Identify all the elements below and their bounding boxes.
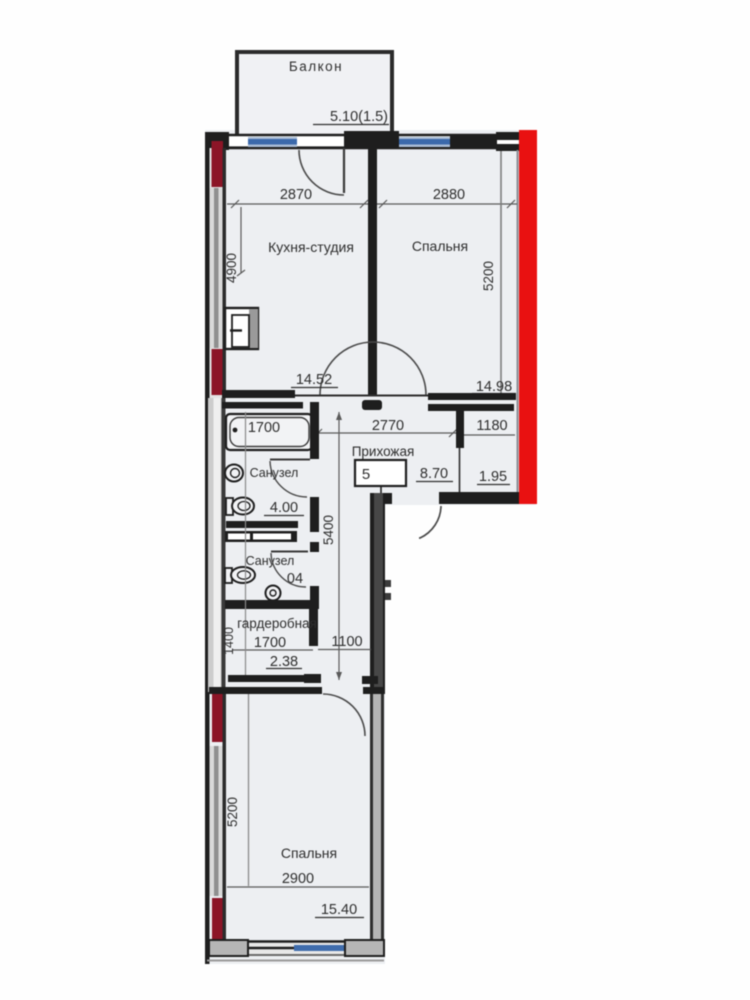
svg-text:гардеробная: гардеробная	[237, 616, 317, 631]
svg-text:Балкон: Балкон	[289, 59, 343, 74]
svg-text:14.52: 14.52	[296, 372, 332, 388]
svg-text:4.00: 4.00	[270, 500, 298, 516]
svg-text:5: 5	[362, 466, 370, 483]
svg-text:2.38: 2.38	[270, 654, 298, 670]
svg-text:Санузел: Санузел	[246, 554, 295, 568]
svg-text:5200: 5200	[225, 797, 240, 827]
svg-text:14.98: 14.98	[476, 379, 512, 395]
svg-text:5400: 5400	[321, 515, 336, 545]
svg-text:1700: 1700	[248, 420, 280, 436]
svg-text:Спальня: Спальня	[412, 238, 468, 254]
svg-text:2770: 2770	[372, 418, 404, 434]
svg-text:2870: 2870	[280, 187, 312, 203]
svg-text:Прихожая: Прихожая	[352, 444, 415, 459]
svg-text:15.40: 15.40	[321, 902, 357, 918]
svg-text:Спальня: Спальня	[281, 845, 337, 861]
svg-text:1700: 1700	[254, 635, 286, 651]
svg-text:Санузел: Санузел	[250, 466, 299, 480]
svg-text:1.95: 1.95	[479, 469, 507, 485]
svg-text:Кухня-студия: Кухня-студия	[268, 239, 354, 255]
svg-text:5200: 5200	[481, 261, 496, 291]
svg-text:1400: 1400	[222, 627, 236, 655]
svg-text:1100: 1100	[331, 634, 362, 650]
svg-text:2880: 2880	[433, 187, 465, 203]
svg-text:8.70: 8.70	[420, 466, 448, 482]
svg-text:1180: 1180	[476, 418, 507, 434]
svg-text:5.10(1.5): 5.10(1.5)	[330, 109, 388, 125]
svg-text:2900: 2900	[282, 871, 314, 887]
svg-text:4900: 4900	[224, 253, 239, 283]
